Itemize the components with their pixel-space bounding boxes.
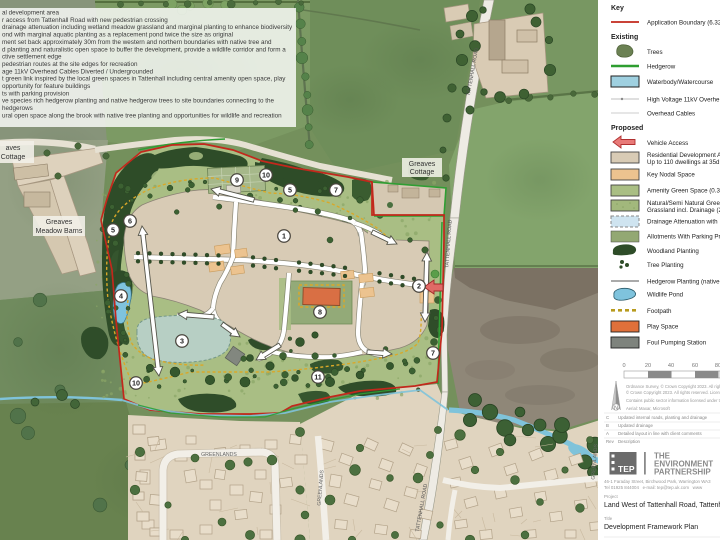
svg-text:Development Framework Plan: Development Framework Plan bbox=[604, 524, 698, 531]
svg-text:TEP: TEP bbox=[618, 464, 635, 474]
svg-text:Drainage Attenuation with: Drainage Attenuation with bbox=[647, 219, 718, 226]
svg-text:Foul Pumping Station: Foul Pumping Station bbox=[647, 340, 707, 347]
svg-text:10: 10 bbox=[132, 379, 140, 388]
svg-text:Greaves: Greaves bbox=[409, 161, 436, 168]
svg-text:Amenity Green Space (0.3: Amenity Green Space (0.3 bbox=[647, 188, 720, 195]
svg-text:High Voltage 11kV Overhe: High Voltage 11kV Overhe bbox=[647, 97, 720, 104]
svg-text:Updated internal roads, planti: Updated internal roads, planting and dra… bbox=[618, 415, 708, 420]
svg-text:Rev: Rev bbox=[606, 439, 615, 444]
svg-text:Tree Planting: Tree Planting bbox=[647, 262, 684, 269]
svg-text:Key Nodal Space: Key Nodal Space bbox=[647, 172, 695, 179]
svg-text:Key: Key bbox=[611, 5, 624, 12]
svg-text:ve species rich hedgerow plant: ve species rich hedgerow planting and na… bbox=[2, 98, 274, 105]
svg-text:9: 9 bbox=[235, 176, 239, 185]
svg-text:Contains public sector informa: Contains public sector information licen… bbox=[626, 398, 720, 403]
svg-text:opportunity for feature buildi: opportunity for feature buildings bbox=[2, 83, 90, 90]
svg-text:11: 11 bbox=[314, 373, 322, 382]
svg-text:Hedgerow: Hedgerow bbox=[647, 64, 676, 71]
svg-text:Up to 110 dwellings at 35d: Up to 110 dwellings at 35d bbox=[647, 159, 720, 166]
svg-text:C: C bbox=[606, 415, 609, 420]
svg-text:5: 5 bbox=[111, 226, 115, 235]
svg-text:1: 1 bbox=[282, 232, 286, 241]
svg-text:Vehicle Access: Vehicle Access bbox=[647, 140, 688, 147]
svg-text:r access from Tattenhall Road: r access from Tattenhall Road with new p… bbox=[2, 17, 168, 24]
svg-text:Woodland Planting: Woodland Planting bbox=[647, 248, 699, 255]
svg-text:N: N bbox=[614, 406, 618, 412]
svg-text:Greaves: Greaves bbox=[46, 219, 73, 226]
svg-text:drainage attenuation including: drainage attenuation including wetland m… bbox=[2, 24, 293, 31]
svg-text:Cottage: Cottage bbox=[1, 154, 26, 161]
svg-text:Footpath: Footpath bbox=[647, 308, 672, 315]
svg-text:Project: Project bbox=[604, 494, 618, 499]
svg-text:hedgerows: hedgerows bbox=[2, 105, 33, 112]
svg-text:4: 4 bbox=[119, 292, 123, 301]
svg-text:Natural/Semi Natural Gree: Natural/Semi Natural Gree bbox=[647, 200, 720, 207]
svg-text:46-1 Faraday Street, Birchwood: 46-1 Faraday Street, Birchwood Park, War… bbox=[604, 479, 711, 484]
svg-text:20: 20 bbox=[645, 363, 651, 369]
svg-text:ond with marginal aquatic plan: ond with marginal aquatic planting as a … bbox=[2, 32, 233, 39]
svg-text:Hedgerow Planting (native: Hedgerow Planting (native bbox=[647, 279, 720, 286]
svg-text:Aerial: Maxar, Microsoft: Aerial: Maxar, Microsoft bbox=[626, 406, 671, 411]
svg-text:PARTNERSHIP: PARTNERSHIP bbox=[654, 468, 711, 477]
svg-text:3: 3 bbox=[180, 337, 184, 346]
svg-text:7: 7 bbox=[334, 186, 338, 195]
svg-text:Play Space: Play Space bbox=[647, 324, 679, 331]
svg-text:Meadow Barns: Meadow Barns bbox=[36, 228, 83, 235]
svg-text:Overhead Cables: Overhead Cables bbox=[647, 111, 695, 118]
svg-text:Application Boundary (6.32: Application Boundary (6.32 bbox=[647, 20, 720, 27]
svg-text:ural open space along the broo: ural open space along the brook with nat… bbox=[2, 112, 282, 119]
svg-text:Cottage: Cottage bbox=[410, 169, 435, 176]
svg-text:ment set back approximately 30: ment set back approximately 30m from the… bbox=[2, 39, 272, 46]
svg-text:Proposed: Proposed bbox=[611, 125, 643, 132]
svg-text:7: 7 bbox=[431, 349, 435, 358]
svg-text:Allotments With Parking Pr: Allotments With Parking Pr bbox=[647, 234, 720, 241]
svg-text:B: B bbox=[606, 423, 609, 428]
svg-text:Detailed layout in line with c: Detailed layout in line with client comm… bbox=[618, 431, 703, 436]
svg-text:ts with parking provision: ts with parking provision bbox=[2, 90, 70, 97]
svg-text:Land West of Tattenhall Road,: Land West of Tattenhall Road, Tattenhall bbox=[604, 502, 720, 509]
svg-text:Existing: Existing bbox=[611, 34, 638, 41]
svg-text:A: A bbox=[606, 431, 609, 436]
svg-text:5: 5 bbox=[288, 186, 292, 195]
svg-text:© Crown Copyright 2023. All ri: © Crown Copyright 2023. All rights reser… bbox=[626, 390, 720, 395]
svg-text:ctive settlement edge: ctive settlement edge bbox=[2, 54, 62, 61]
svg-text:6: 6 bbox=[128, 217, 132, 226]
svg-text:Wildlife Pond: Wildlife Pond bbox=[647, 292, 684, 299]
svg-text:10: 10 bbox=[262, 171, 270, 180]
svg-text:d planting and naturalistic op: d planting and naturalistic open space t… bbox=[2, 46, 286, 53]
svg-text:Ordnance Survey, © Crown Copyr: Ordnance Survey, © Crown Copyright 2023.… bbox=[626, 384, 720, 389]
svg-text:80: 80 bbox=[715, 363, 720, 369]
svg-text:Title: Title bbox=[604, 516, 613, 521]
svg-text:40: 40 bbox=[668, 363, 674, 369]
svg-text:0: 0 bbox=[622, 363, 625, 369]
svg-text:GREENLANDS: GREENLANDS bbox=[201, 452, 237, 458]
svg-text:al development area: al development area bbox=[2, 10, 60, 17]
svg-text:Tel 01925 844004 e-mail: tep: Tel 01925 844004 e-mail: tep@tep.uk.com … bbox=[604, 485, 703, 490]
svg-text:t green link inspired by the l: t green link inspired by the local green… bbox=[2, 76, 286, 83]
svg-text:aves: aves bbox=[6, 145, 21, 152]
svg-text:60: 60 bbox=[692, 363, 698, 369]
svg-text:age 11kV Overhead Cables Diver: age 11kV Overhead Cables Diverted / Unde… bbox=[2, 68, 154, 75]
svg-text:8: 8 bbox=[318, 308, 322, 317]
svg-text:pedestrian routes at the site: pedestrian routes at the site edges for … bbox=[2, 61, 138, 68]
svg-text:Waterbody/Watercourse: Waterbody/Watercourse bbox=[647, 79, 714, 86]
svg-text:2: 2 bbox=[417, 282, 421, 291]
svg-text:Grassland incl. Drainage (2: Grassland incl. Drainage (2 bbox=[647, 207, 720, 214]
svg-text:Updated drainage: Updated drainage bbox=[618, 423, 653, 428]
svg-text:Description: Description bbox=[618, 439, 641, 444]
svg-text:Trees: Trees bbox=[647, 49, 663, 56]
svg-text:Residential Development A: Residential Development A bbox=[647, 152, 720, 159]
